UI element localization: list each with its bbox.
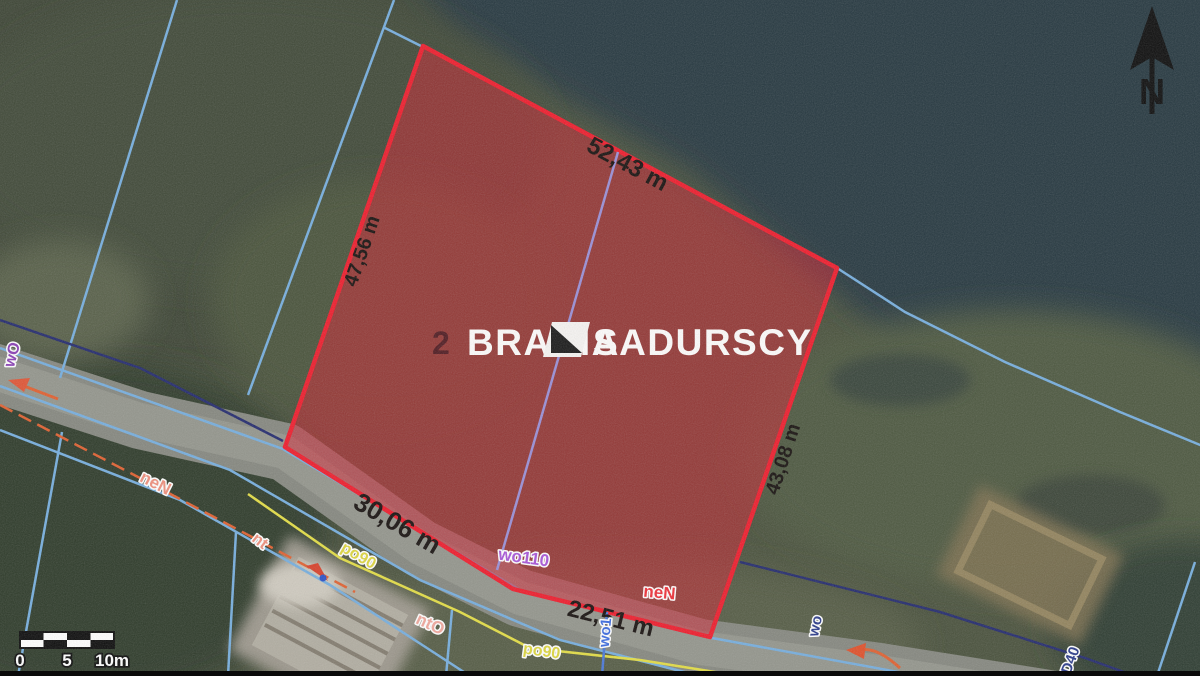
bottom-letterbox: [0, 671, 1200, 676]
grain-overlay: [0, 0, 1200, 676]
satellite-map: 2 BRACIA SADURSCY 52,43 m 47,56 m 43,08 …: [0, 0, 1200, 676]
map-canvas: 2 BRACIA SADURSCY 52,43 m 47,56 m 43,08 …: [0, 0, 1200, 676]
